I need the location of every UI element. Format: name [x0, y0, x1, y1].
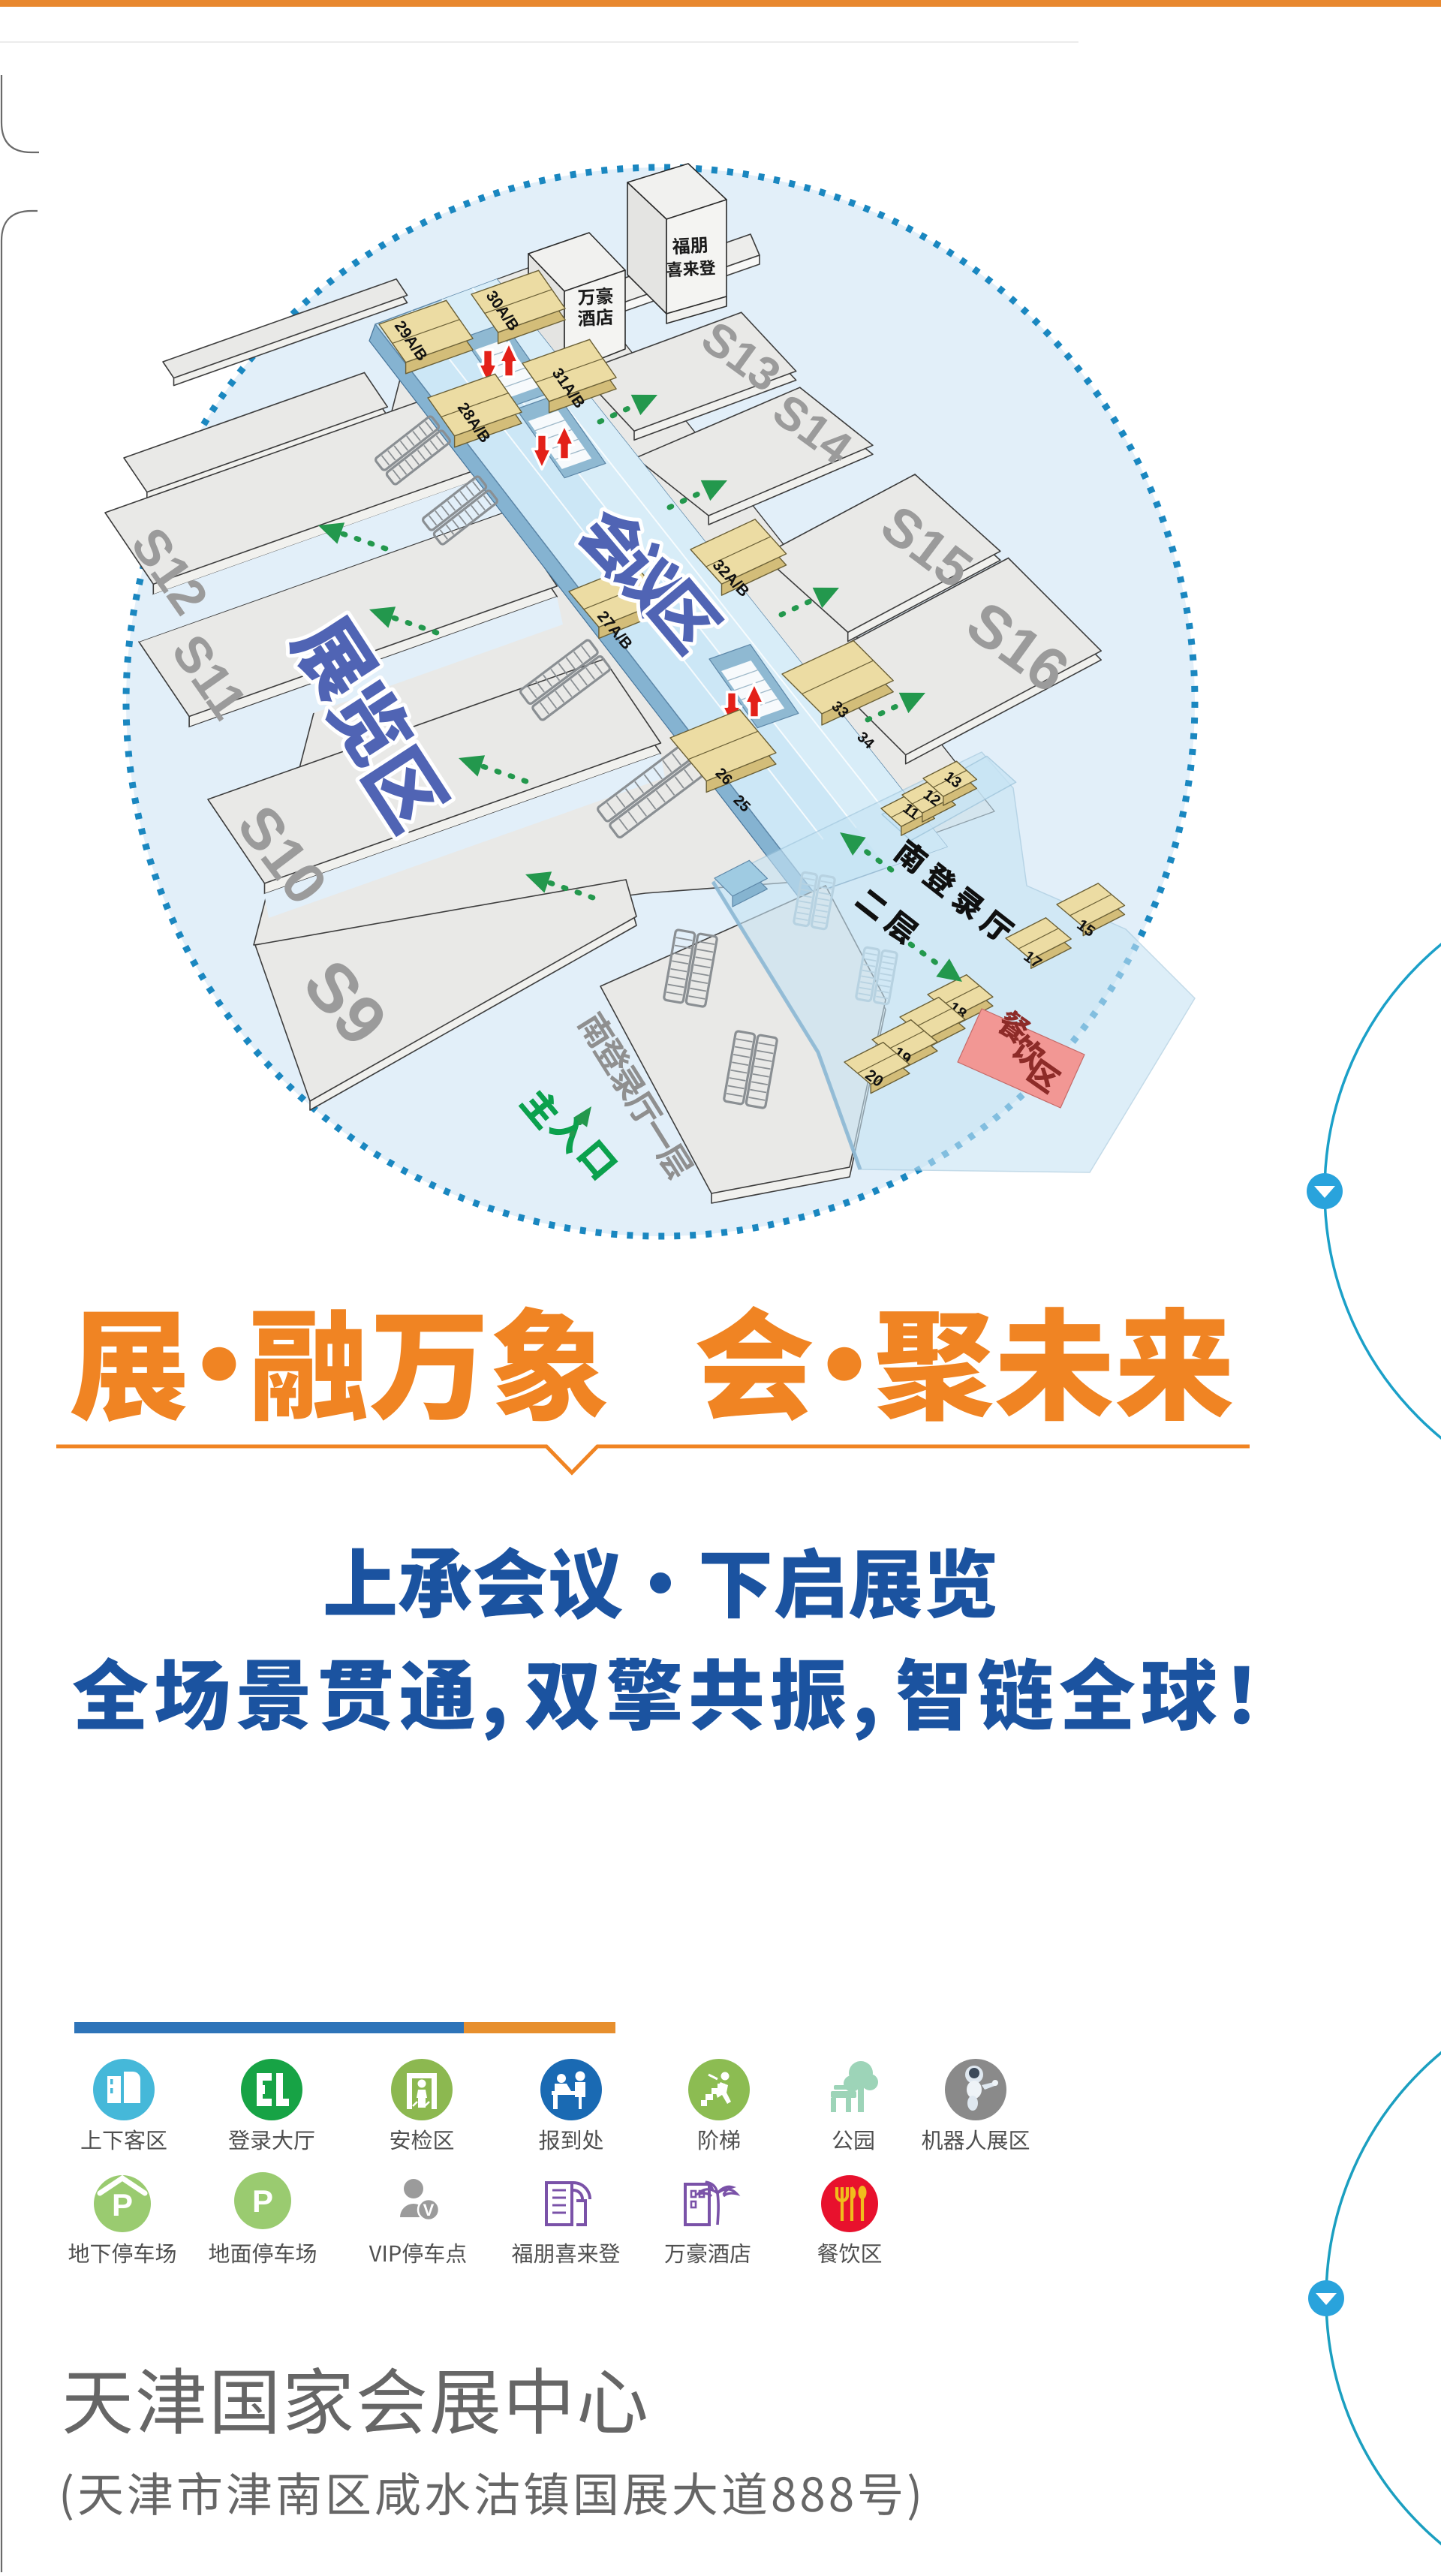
svg-text:P: P	[252, 2183, 273, 2219]
svg-text:P: P	[112, 2187, 133, 2222]
svg-text:V: V	[423, 2201, 435, 2219]
